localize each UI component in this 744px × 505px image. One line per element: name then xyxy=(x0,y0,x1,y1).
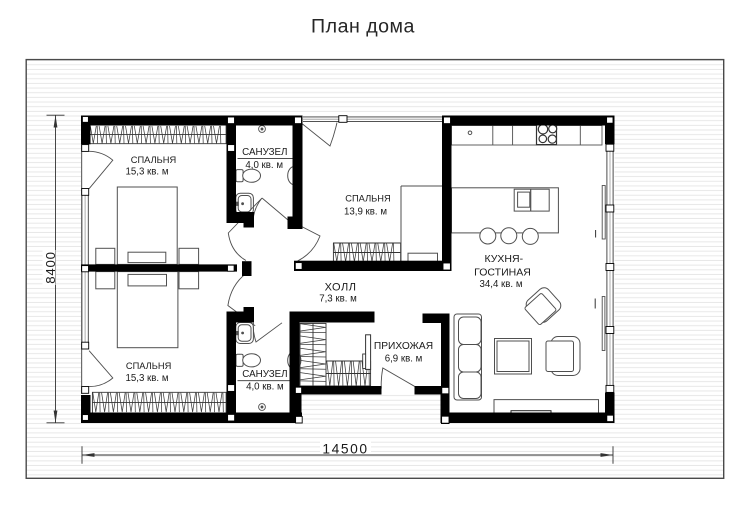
svg-text:15,3 кв. м: 15,3 кв. м xyxy=(126,373,169,384)
svg-text:7,3 кв. м: 7,3 кв. м xyxy=(319,293,357,304)
svg-text:СПАЛЬНЯ: СПАЛЬНЯ xyxy=(345,194,390,204)
svg-text:6,9 кв. м: 6,9 кв. м xyxy=(385,354,423,365)
svg-text:ПРИХОЖАЯ: ПРИХОЖАЯ xyxy=(374,341,433,352)
svg-text:САНУЗЕЛ: САНУЗЕЛ xyxy=(242,147,287,158)
svg-text:ХОЛЛ: ХОЛЛ xyxy=(325,282,357,294)
svg-text:СПАЛЬНЯ: СПАЛЬНЯ xyxy=(126,361,171,371)
svg-text:15,3 кв. м: 15,3 кв. м xyxy=(126,167,169,178)
svg-text:ГОСТИНАЯ: ГОСТИНАЯ xyxy=(474,266,531,278)
svg-text:8400: 8400 xyxy=(43,251,58,284)
svg-text:КУХНЯ-: КУХНЯ- xyxy=(485,253,524,265)
svg-text:СПАЛЬНЯ: СПАЛЬНЯ xyxy=(131,155,176,165)
svg-text:13,9 кв. м: 13,9 кв. м xyxy=(344,207,387,218)
svg-text:4,0 кв. м: 4,0 кв. м xyxy=(246,381,284,392)
svg-text:САНУЗЕЛ: САНУЗЕЛ xyxy=(242,369,287,380)
svg-text:14500: 14500 xyxy=(322,442,368,457)
svg-text:План дома: План дома xyxy=(311,16,415,38)
svg-text:34,4 кв. м: 34,4 кв. м xyxy=(480,279,523,290)
svg-text:4,0 кв. м: 4,0 кв. м xyxy=(245,160,283,171)
